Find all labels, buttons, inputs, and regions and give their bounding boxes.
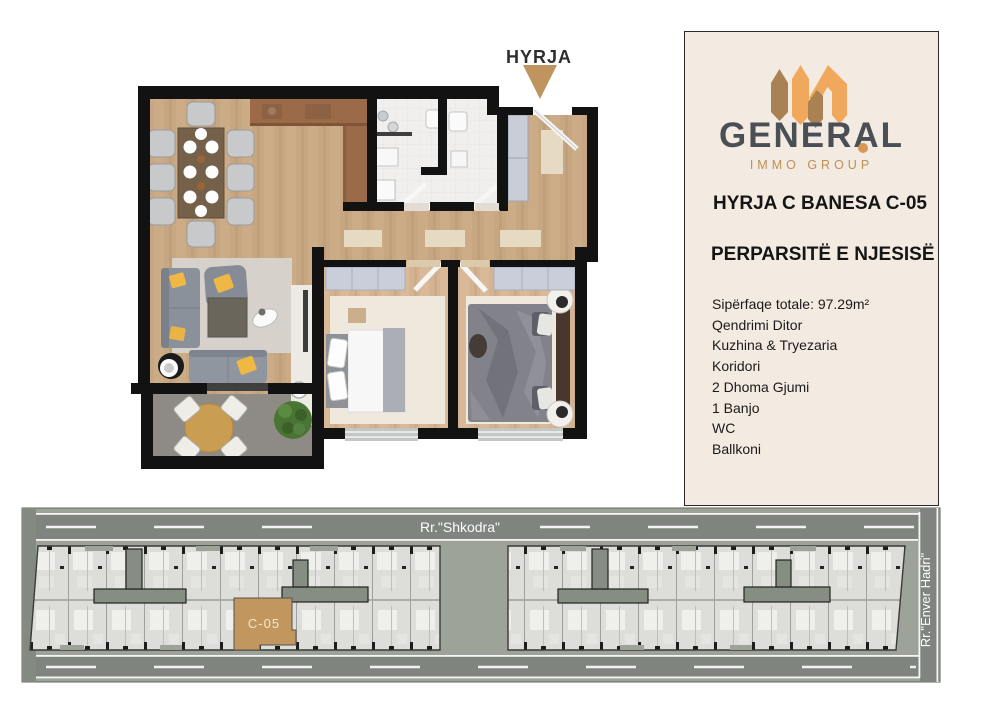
svg-text:Rr."Enver Hadri": Rr."Enver Hadri" xyxy=(918,552,933,647)
svg-text:Rr."Shkodra": Rr."Shkodra" xyxy=(420,519,500,535)
svg-text:C-05: C-05 xyxy=(248,616,280,631)
svg-text:HYRJA: HYRJA xyxy=(506,47,572,67)
